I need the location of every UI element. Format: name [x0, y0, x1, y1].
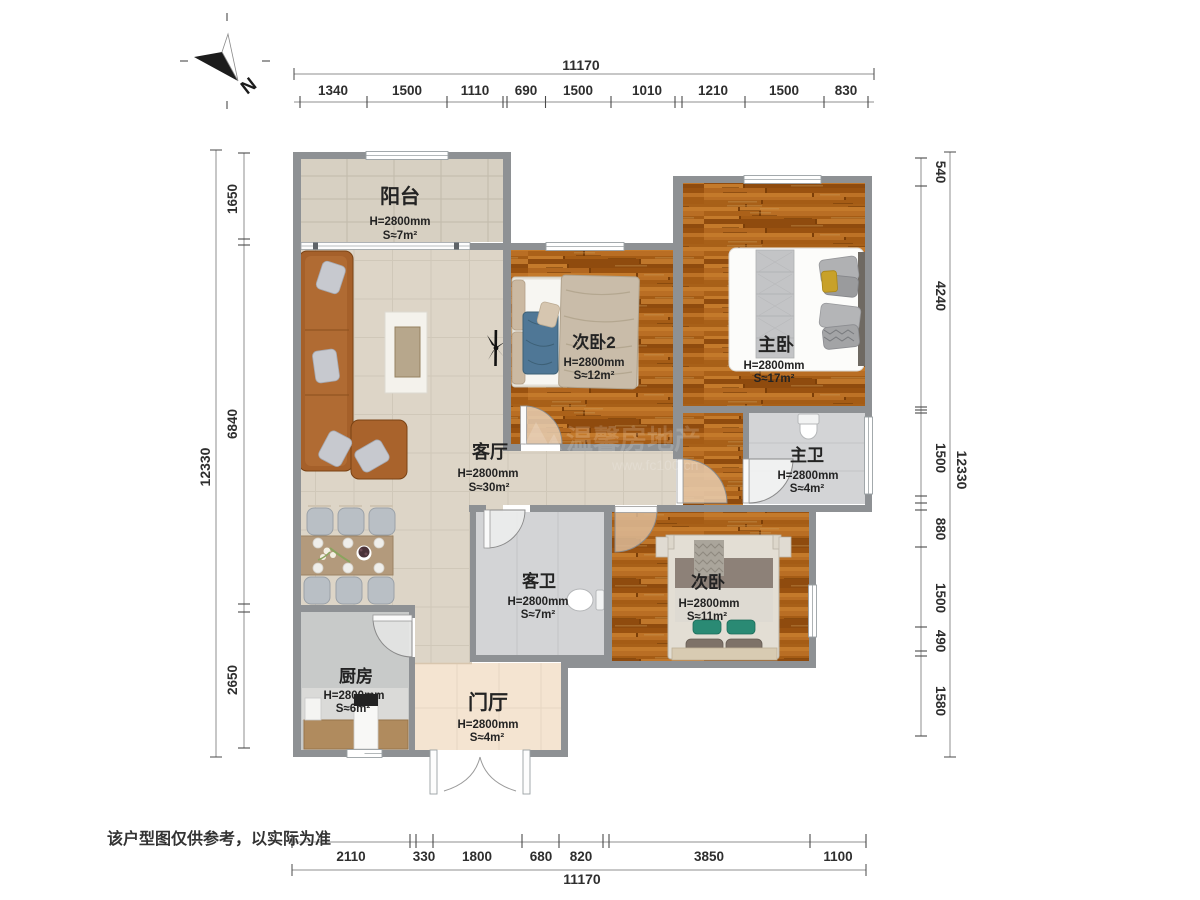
- svg-text:830: 830: [835, 83, 858, 98]
- svg-text:www.fc100.cn: www.fc100.cn: [611, 457, 698, 473]
- svg-text:1650: 1650: [225, 184, 240, 214]
- svg-text:H=2800mm: H=2800mm: [457, 719, 518, 731]
- svg-text:1110: 1110: [461, 83, 490, 98]
- svg-text:S≈7m²: S≈7m²: [383, 230, 418, 242]
- svg-text:1500: 1500: [392, 83, 422, 98]
- svg-text:H=2800mm: H=2800mm: [777, 470, 838, 482]
- svg-text:次卧: 次卧: [691, 572, 725, 592]
- svg-text:H=2800mm: H=2800mm: [743, 360, 804, 372]
- svg-text:680: 680: [530, 849, 553, 864]
- svg-text:1100: 1100: [823, 849, 852, 864]
- svg-text:H=2800mm: H=2800mm: [457, 468, 518, 480]
- svg-text:3850: 3850: [694, 849, 724, 864]
- svg-text:1500: 1500: [933, 583, 948, 613]
- svg-text:H=2800mm: H=2800mm: [507, 596, 568, 608]
- svg-text:S≈12m²: S≈12m²: [574, 370, 615, 382]
- svg-text:H=2800mm: H=2800mm: [369, 216, 430, 228]
- svg-text:1500: 1500: [563, 83, 593, 98]
- svg-text:1210: 1210: [698, 83, 728, 98]
- svg-text:880: 880: [933, 518, 948, 541]
- svg-text:12330: 12330: [197, 447, 213, 486]
- svg-text:2650: 2650: [225, 665, 240, 695]
- svg-text:490: 490: [933, 630, 948, 653]
- svg-text:主卫: 主卫: [790, 445, 824, 465]
- svg-text:1500: 1500: [769, 83, 799, 98]
- svg-text:H=2800mm: H=2800mm: [678, 598, 739, 610]
- svg-text:330: 330: [413, 849, 436, 864]
- svg-text:690: 690: [515, 83, 538, 98]
- svg-text:H=2800mm: H=2800mm: [323, 690, 384, 702]
- svg-text:H=2800mm: H=2800mm: [563, 357, 624, 369]
- svg-text:1800: 1800: [462, 849, 492, 864]
- svg-text:11170: 11170: [562, 57, 600, 73]
- svg-text:S≈7m²: S≈7m²: [521, 609, 556, 621]
- svg-text:客厅: 客厅: [472, 441, 508, 462]
- svg-text:6840: 6840: [225, 409, 240, 439]
- svg-text:厨房: 厨房: [339, 666, 373, 686]
- svg-text:该户型图仅供参考，以实际为准: 该户型图仅供参考，以实际为准: [107, 829, 331, 848]
- svg-text:S≈17m²: S≈17m²: [754, 373, 795, 385]
- svg-text:S≈4m²: S≈4m²: [790, 483, 825, 495]
- svg-text:1500: 1500: [933, 443, 948, 473]
- svg-text:2110: 2110: [336, 849, 365, 864]
- svg-text:阳台: 阳台: [380, 184, 420, 208]
- svg-text:门厅: 门厅: [468, 690, 508, 714]
- svg-text:820: 820: [570, 849, 593, 864]
- svg-text:540: 540: [933, 161, 948, 184]
- svg-text:1010: 1010: [632, 83, 662, 98]
- svg-text:客卫: 客卫: [521, 571, 556, 591]
- svg-text:11170: 11170: [563, 871, 601, 887]
- svg-text:温馨房地产: 温馨房地产: [566, 425, 701, 455]
- svg-text:1580: 1580: [933, 686, 948, 716]
- svg-text:4240: 4240: [933, 281, 948, 311]
- svg-text:S≈4m²: S≈4m²: [470, 732, 505, 744]
- svg-text:1340: 1340: [318, 83, 348, 98]
- svg-text:S≈11m²: S≈11m²: [687, 611, 727, 623]
- svg-text:S≈30m²: S≈30m²: [469, 482, 510, 494]
- svg-text:S≈6m²: S≈6m²: [336, 703, 371, 715]
- svg-text:12330: 12330: [954, 451, 970, 490]
- svg-text:主卧: 主卧: [758, 334, 794, 355]
- svg-text:次卧2: 次卧2: [572, 332, 615, 352]
